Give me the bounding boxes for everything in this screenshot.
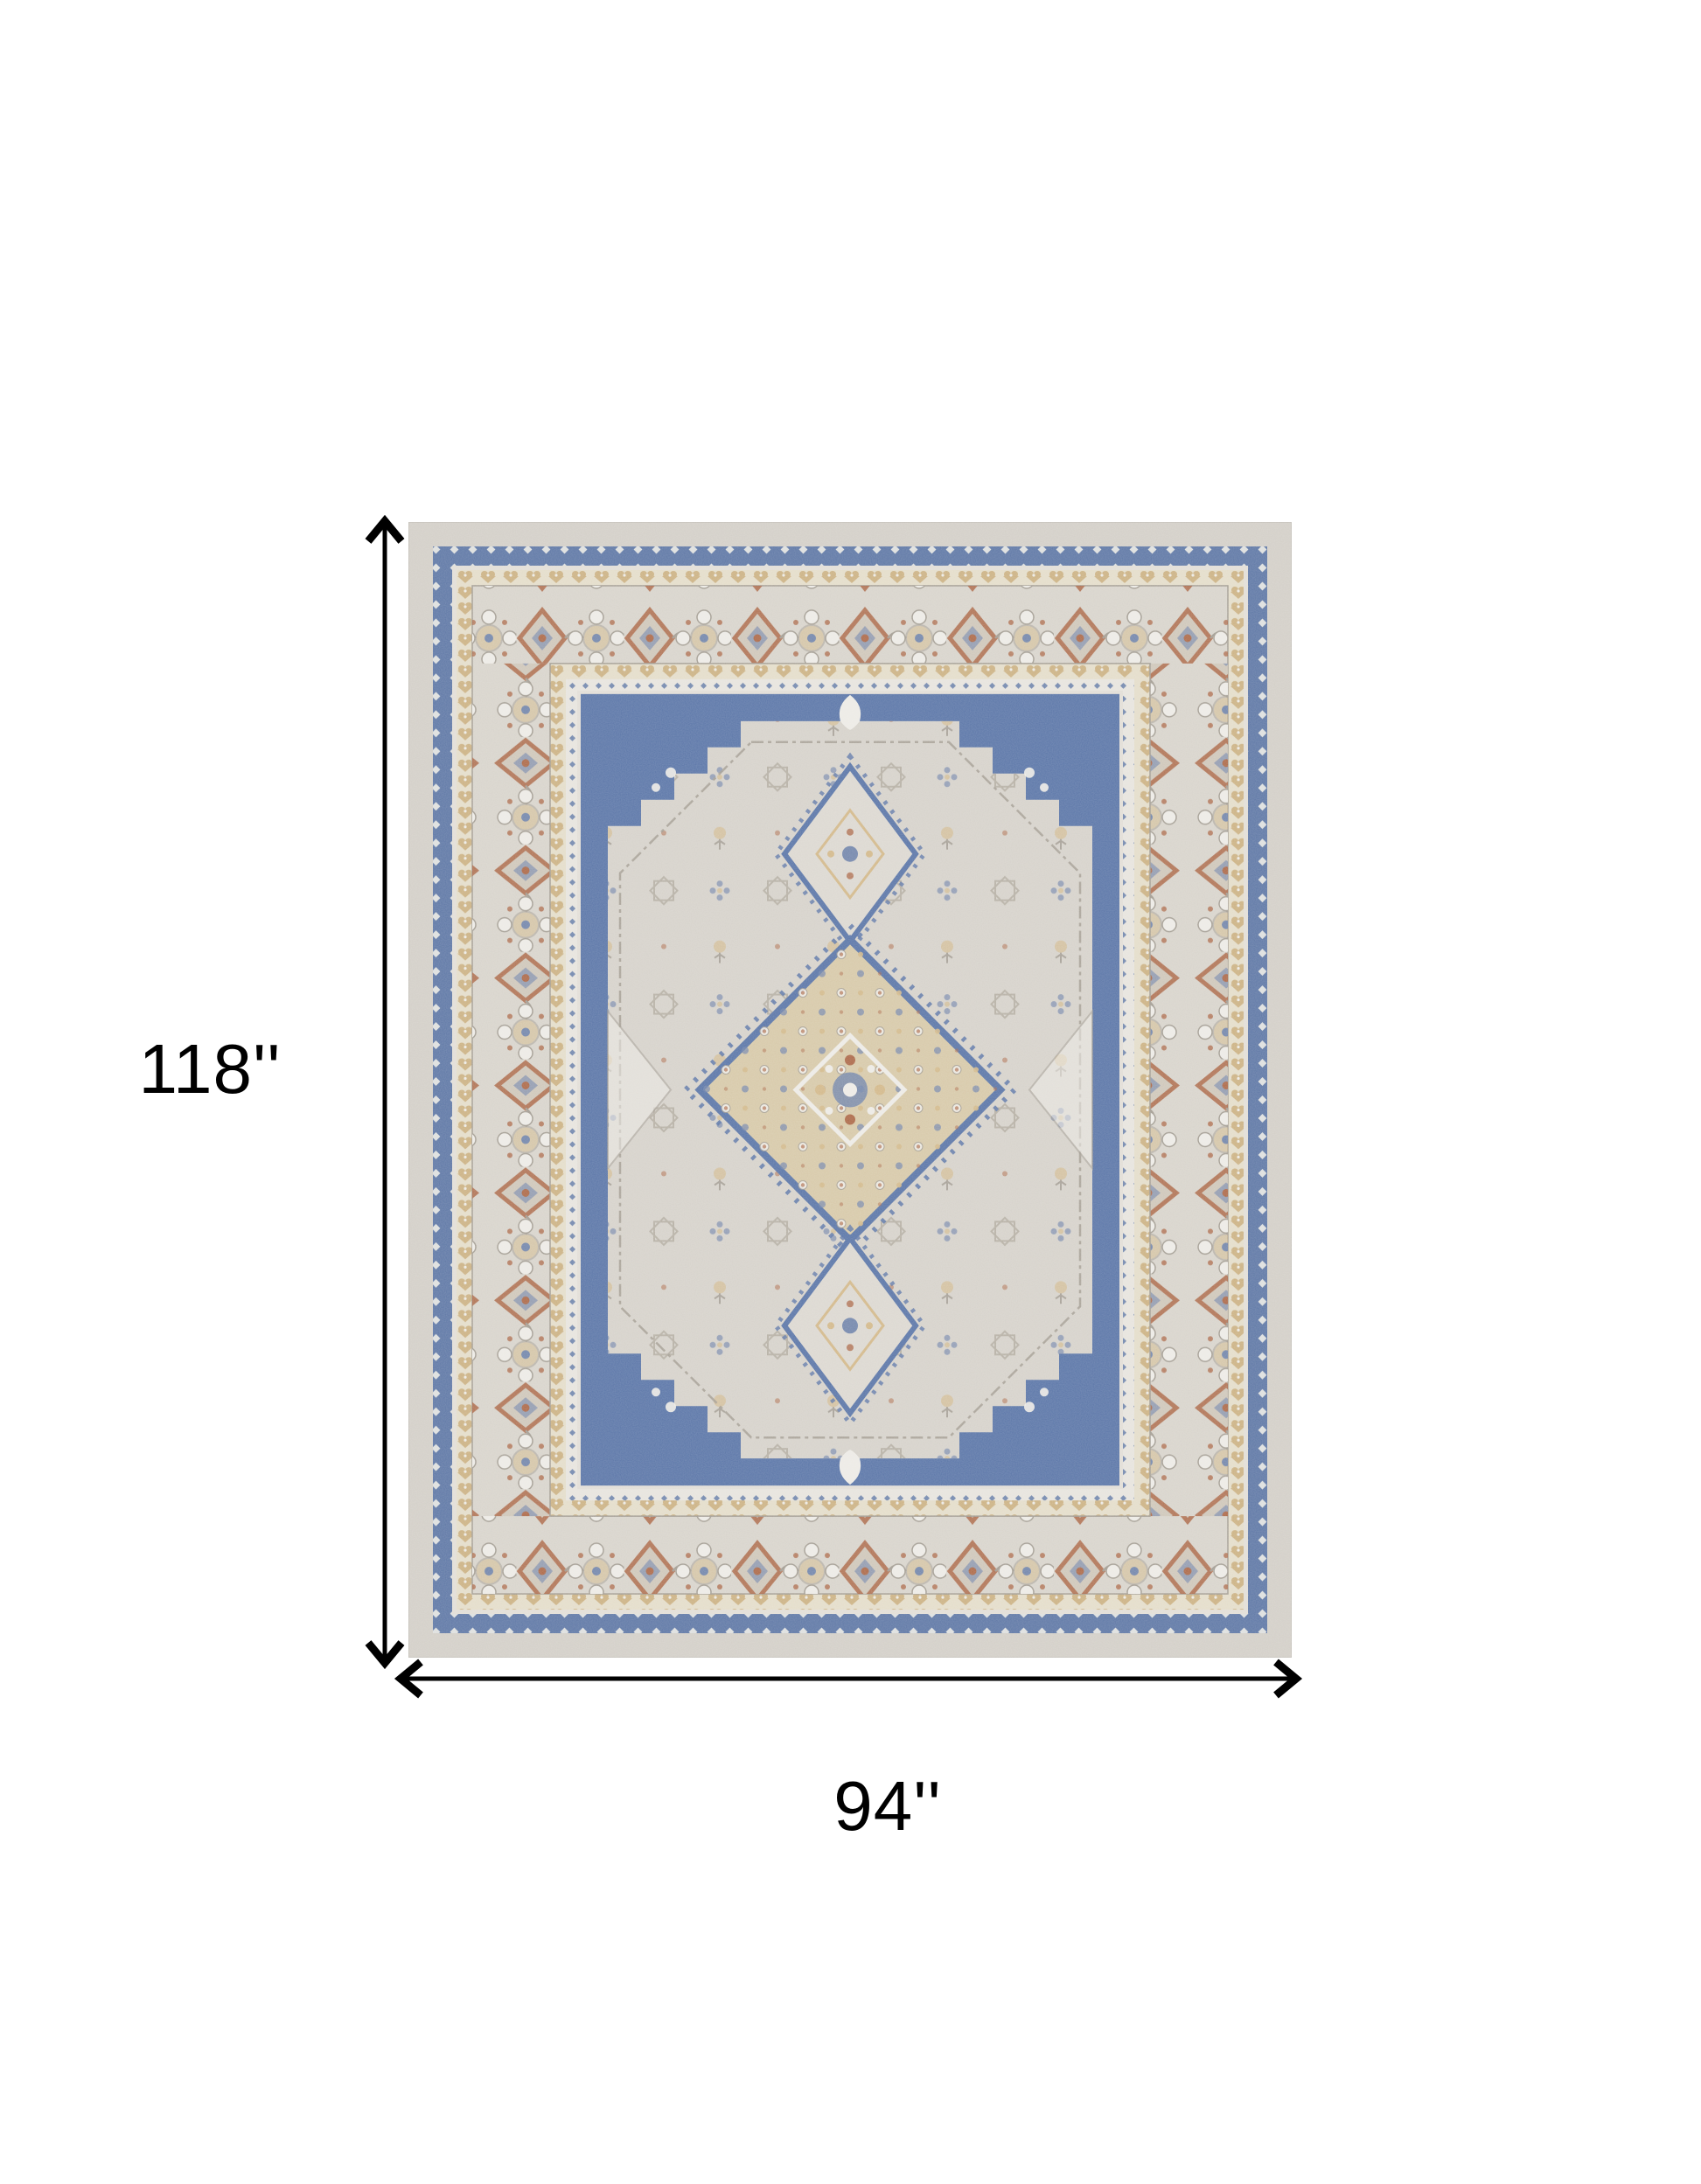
rug-texture-overlay xyxy=(408,522,1292,1658)
height-dimension-label: 118'' xyxy=(79,1017,341,1122)
rug-product-image xyxy=(408,522,1292,1658)
product-dimension-diagram: 118'' 94'' xyxy=(0,0,1701,2184)
width-dimension-arrow xyxy=(401,1662,1296,1695)
rug-graphic xyxy=(408,522,1292,1658)
height-dimension-arrow xyxy=(368,521,401,1663)
width-dimension-label: 94'' xyxy=(756,1754,1019,1859)
